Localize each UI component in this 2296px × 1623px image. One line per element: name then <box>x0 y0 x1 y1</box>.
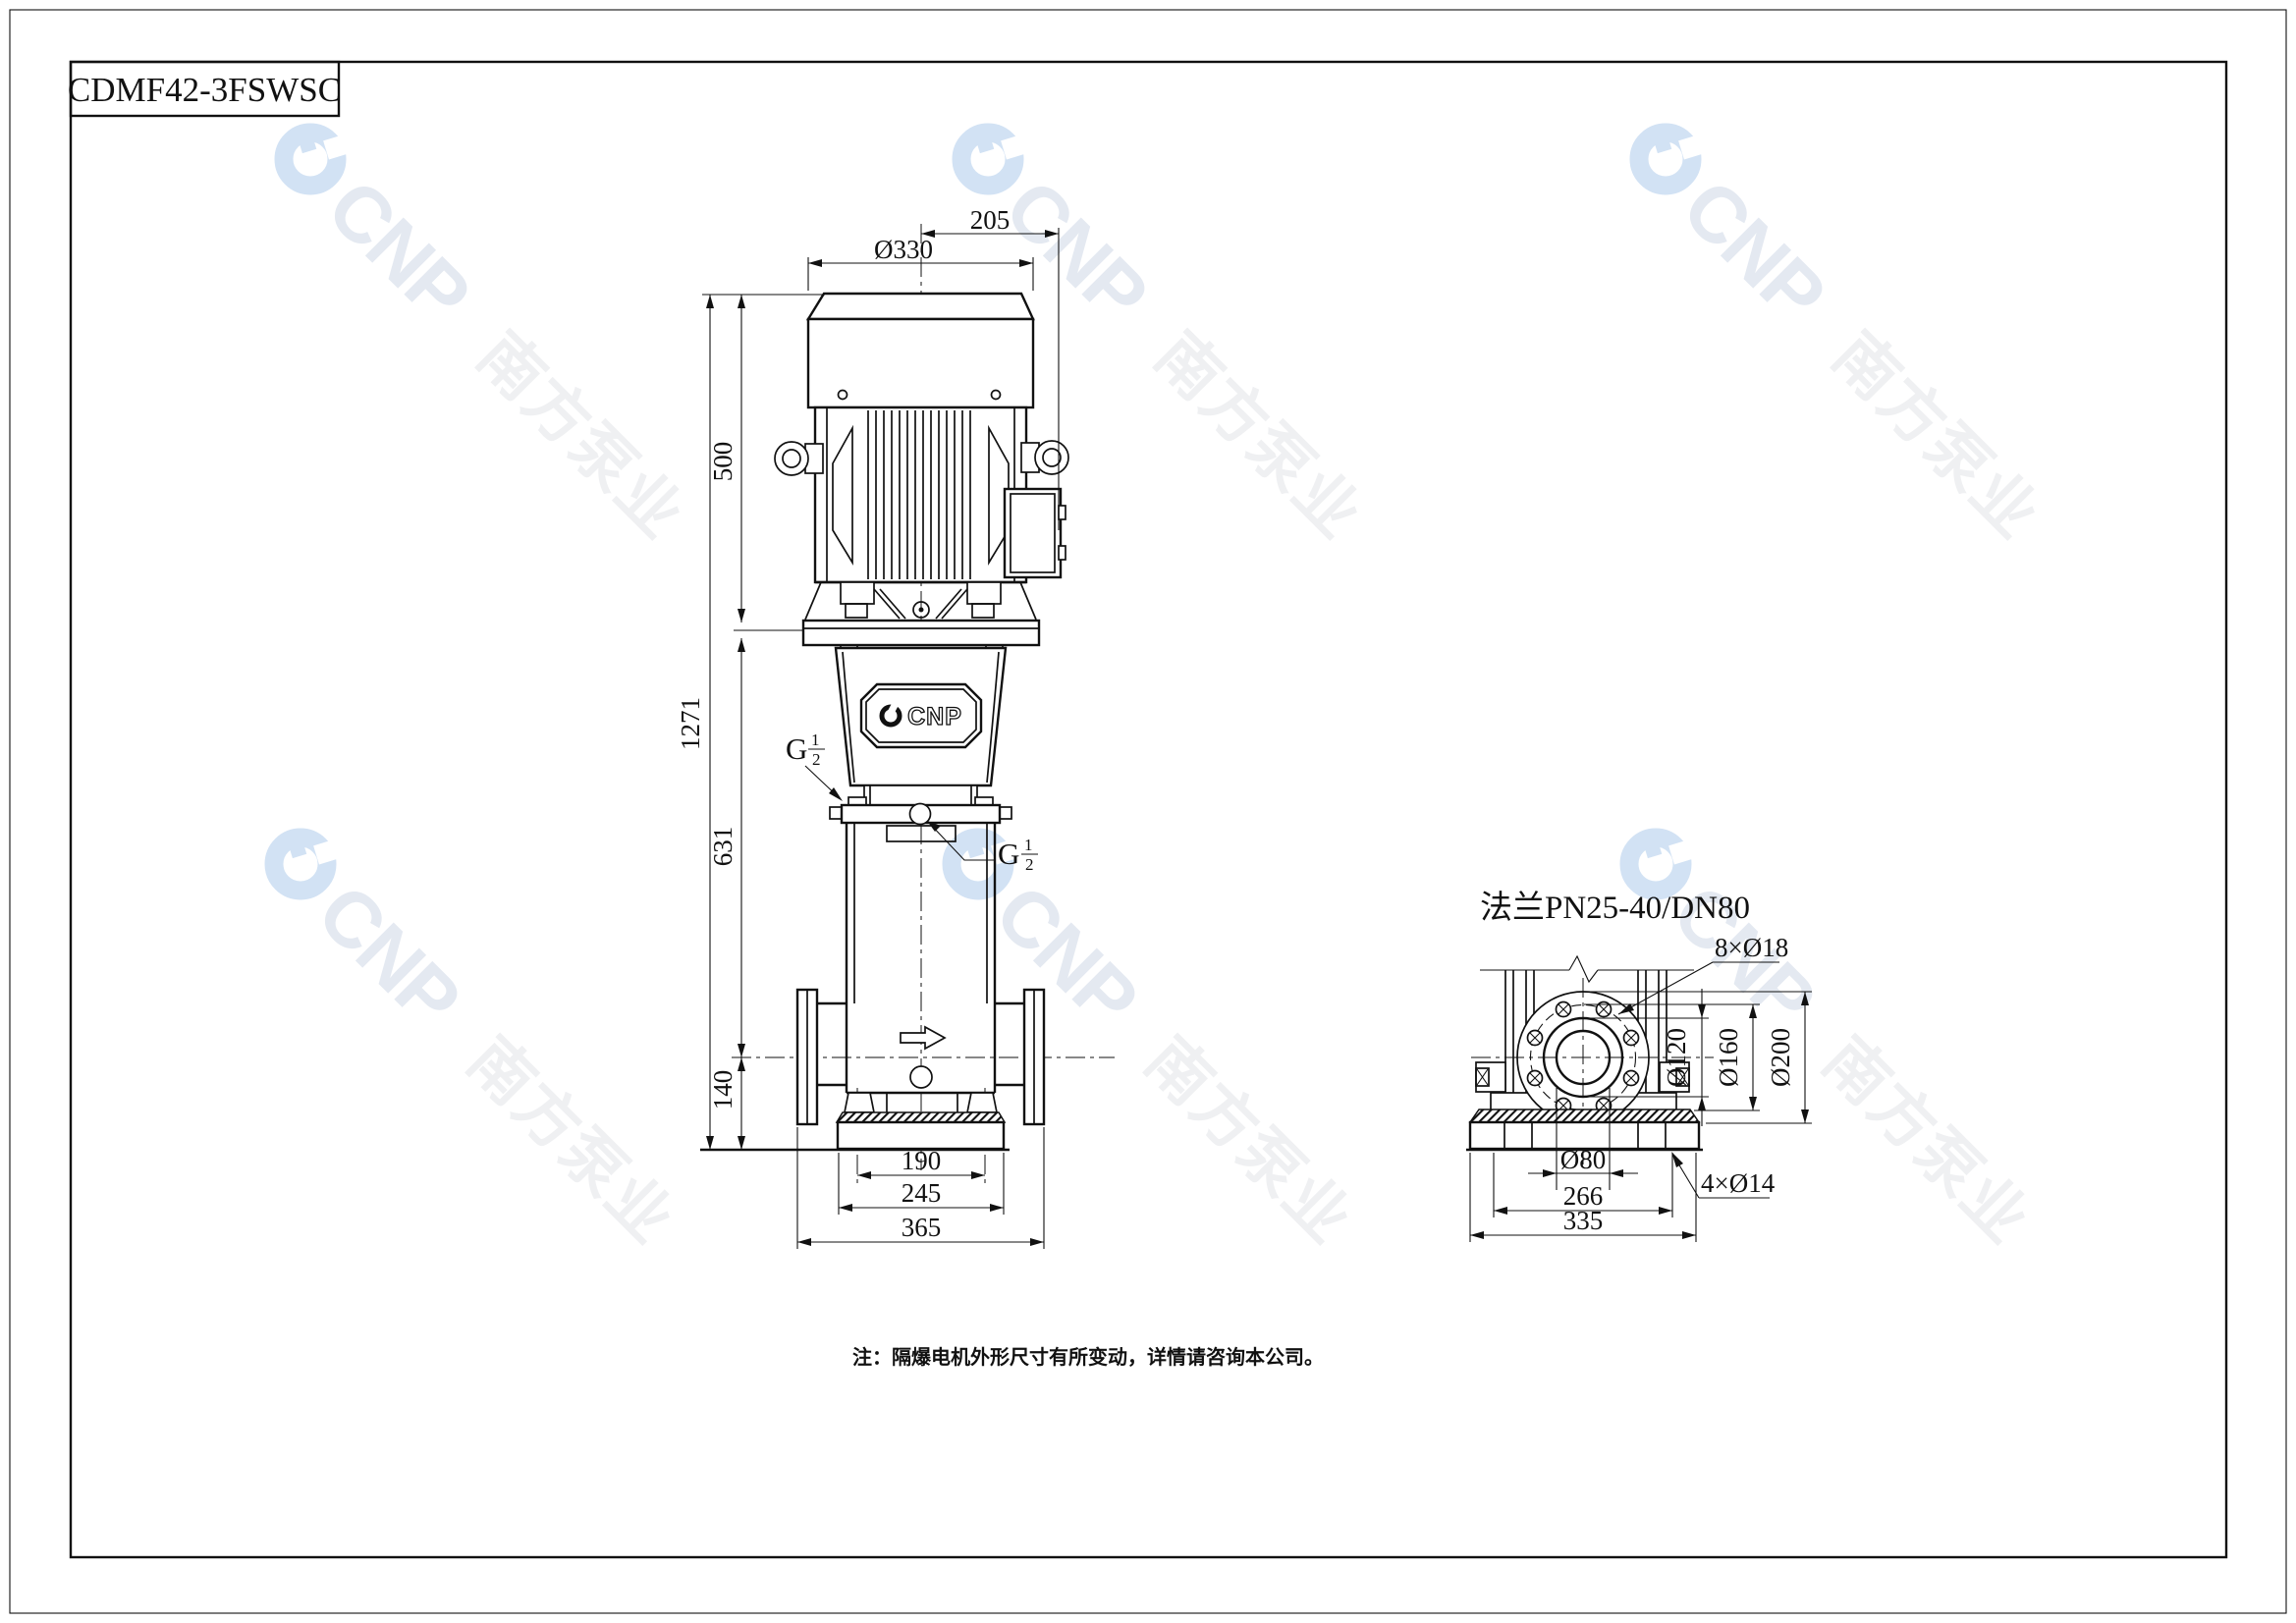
watermark-company: 南方泵业 <box>1141 319 1376 554</box>
dim-overall-height: 1271 <box>676 697 705 750</box>
port-frac-num: 1 <box>811 730 820 749</box>
dim-center-to-jbox: 205 <box>970 205 1011 235</box>
watermark: CNP 南方泵业 <box>1611 105 2063 558</box>
gauge-port-label: G 1 2 <box>786 730 843 801</box>
badge-brand: CNP <box>907 703 962 730</box>
cnp-logo-watermark-icon <box>947 105 1039 197</box>
brand-badge: CNP <box>861 684 981 747</box>
port-size: G <box>786 731 807 766</box>
cnp-logo-watermark-icon <box>1614 810 1707 902</box>
dim-bolt-circle: Ø160 <box>1714 1028 1743 1087</box>
port-frac-den: 2 <box>1025 855 1034 874</box>
watermark: CNP 南方泵业 <box>255 105 708 558</box>
front-view: CNP <box>676 205 1115 1249</box>
dim-motor-height: 500 <box>708 442 738 482</box>
dim-bolt-span: 190 <box>902 1146 942 1175</box>
cnp-logo-watermark-icon <box>259 810 352 902</box>
watermark-company: 南方泵业 <box>454 1024 688 1259</box>
title-block: CDMF42-3FSWSC <box>68 62 341 116</box>
watermark-company: 南方泵业 <box>1131 1024 1366 1259</box>
watermark: CNP 南方泵业 <box>246 810 698 1263</box>
watermark-company: 南方泵业 <box>1809 1024 2044 1259</box>
watermark-brand: CNP <box>1667 163 1841 338</box>
port-size: G <box>998 837 1019 871</box>
port-frac-den: 2 <box>812 750 821 769</box>
watermark: CNP 南方泵业 <box>923 810 1376 1263</box>
dim-anchor-holes: 4×Ø14 <box>1701 1168 1776 1198</box>
dim-bore: Ø80 <box>1560 1145 1607 1174</box>
cnp-logo-watermark-icon <box>1624 105 1717 197</box>
port-frac-num: 1 <box>1024 836 1033 854</box>
dim-raised-face: Ø120 <box>1662 1028 1691 1087</box>
dim-flange-od: Ø200 <box>1766 1028 1795 1087</box>
watermark-company: 南方泵业 <box>464 319 698 554</box>
watermark-company: 南方泵业 <box>1819 319 2053 554</box>
drain-hole <box>910 1066 932 1088</box>
model-number: CDMF42-3FSWSC <box>68 71 341 109</box>
dim-bolt-holes: 8×Ø18 <box>1715 933 1788 962</box>
flange-spec-label: 法兰PN25-40/DN80 <box>1480 890 1750 926</box>
drawing-sheet: CNP 南方泵业 CNP 南方泵业 CNP 南方泵业 <box>0 0 2296 1623</box>
lifting-eye-right <box>1021 441 1068 474</box>
dim-flange-span: 365 <box>902 1213 942 1242</box>
pump-head: CNP <box>830 648 1011 825</box>
dim-side-base-width: 335 <box>1563 1206 1604 1235</box>
side-view: 法兰PN25-40/DN80 <box>1466 890 1812 1242</box>
pump-base <box>700 1093 1010 1150</box>
watermarks: CNP 南方泵业 CNP 南方泵业 CNP 南方泵业 <box>246 105 2063 1263</box>
watermark-brand: CNP <box>979 868 1154 1043</box>
side-base <box>1466 1109 1703 1150</box>
cnp-logo-watermark-icon <box>269 105 361 197</box>
dim-base-width: 245 <box>902 1178 942 1208</box>
dim-motor-width: Ø330 <box>874 235 933 264</box>
motor-fan-cover <box>808 294 1033 407</box>
flow-direction-icon <box>901 1027 945 1049</box>
watermark-brand: CNP <box>311 163 486 338</box>
junction-box <box>1005 489 1066 577</box>
dim-flange-to-axis: 631 <box>708 827 738 867</box>
watermark-brand: CNP <box>301 868 476 1043</box>
lifting-eye-left <box>775 442 823 475</box>
motor-body <box>815 407 1026 582</box>
drawing-note: 注：隔爆电机外形尺寸有所变动，详情请咨询本公司。 <box>852 1345 1324 1369</box>
dim-axis-to-base: 140 <box>708 1070 738 1110</box>
